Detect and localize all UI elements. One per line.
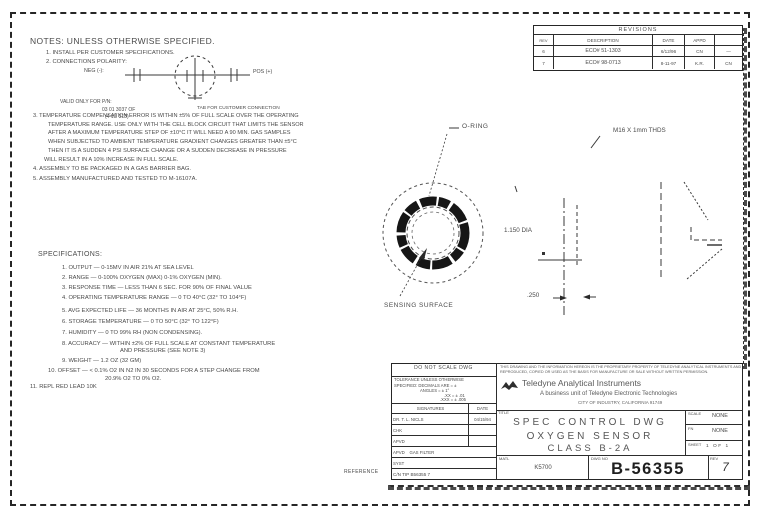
spec-4: 4. OPERATING TEMPERATURE RANGE — 0 TO 40…: [62, 295, 246, 301]
reference-label: REFERENCE: [344, 470, 378, 476]
rev-row-cell: 6: [534, 45, 553, 56]
revisions-table: REVISIONS REV DESCRIPTION DATE APPD 6 EC…: [533, 25, 743, 71]
note-2: 2. CONNECTIONS POLARITY:: [46, 59, 127, 65]
scale-label: SCALE: [688, 412, 701, 416]
title-block-line: [588, 455, 589, 480]
sheet-label: SHEET: [688, 443, 701, 447]
approved-date: [468, 436, 496, 446]
fn-value: NONE: [712, 428, 728, 434]
tolerance-line-1: TOLERANCE UNLESS OTHERWISE: [394, 378, 464, 383]
approved-by: APVD: [391, 439, 468, 444]
sensing-surface-label: SENSING SURFACE: [384, 302, 453, 309]
dia-dimension-label: 1.150 DIA: [504, 228, 532, 235]
drawn-by: DR. T. L. NICLS: [391, 417, 468, 422]
rev-col-header: REV: [534, 35, 553, 45]
spec-3: 3. RESPONSE TIME — LESS THAN 6 SEC. FOR …: [62, 285, 252, 291]
spec-2: 2. RANGE — 0-100% OXYGEN (MAX) 0-1% OXYG…: [62, 275, 222, 281]
polarity-tab-note: TAB FOR CUSTOMER CONNECTION: [197, 106, 280, 111]
polarity-pos-label: POS (+): [253, 70, 272, 76]
rev-row-cell: —: [714, 45, 742, 56]
drawing-title-line2: OXYGEN SENSOR: [500, 431, 680, 442]
checked-by: CHK: [391, 428, 468, 433]
drawing-number: B-56355: [590, 460, 706, 478]
note-3-line6: WILL RESULT IN A 10% INCREASE IN FULL SC…: [44, 157, 178, 163]
spec-11: 11. REPL RED LEAD 10K: [30, 384, 97, 390]
appd-col-header: APPD: [684, 35, 714, 45]
company-subtitle: A business unit of Teledyne Electronic T…: [540, 391, 677, 398]
spec-1: 1. OUTPUT — 0-15MV IN AIR 21% AT SEA LEV…: [62, 265, 194, 271]
matl-label: MATL: [499, 457, 509, 461]
title-block-line: [685, 410, 686, 455]
proprietary-note-line1: THIS DRAWING AND THE INFORMATION HEREON …: [500, 365, 742, 369]
rev-row-cell: ECO# 51-1303: [553, 45, 652, 56]
title-block-line: [685, 424, 743, 425]
syst-row: SYST: [391, 461, 496, 466]
drawing-title-line3: CLASS B-2A: [500, 444, 680, 454]
oring-label: O-RING: [462, 123, 488, 130]
change-number-row: C/N TIP B56355 7: [391, 472, 496, 477]
rev-row-cell: 6/12/96: [652, 45, 684, 56]
spec-10b: 20.9% O2 TO 0% O2.: [105, 376, 161, 382]
specs-heading: SPECIFICATIONS:: [38, 251, 102, 259]
rev-row-cell: CN: [684, 45, 714, 56]
drawing-sheet: NOTES: UNLESS OTHERWISE SPECIFIED. 1. IN…: [0, 0, 764, 518]
notes-heading: NOTES: UNLESS OTHERWISE SPECIFIED.: [30, 37, 215, 46]
thread-callout-label: M16 X 1mm THDS: [613, 128, 666, 135]
date-col-header: DATE: [652, 35, 684, 45]
inner-bottom-border: [388, 485, 750, 490]
do-not-scale-note: DO NOT SCALE DWG: [391, 366, 496, 372]
note-4: 4. ASSEMBLY TO BE PACKAGED IN A GAS BARR…: [33, 166, 191, 172]
rev-row-cell: ECO# 98-0713: [553, 56, 652, 69]
title-block-line: [496, 410, 743, 411]
spec-8a: 8. ACCURACY — WITHIN ±2% OF FULL SCALE A…: [62, 341, 275, 347]
tolerance-xxx: .XXX = ± .005: [440, 398, 466, 403]
spec-6: 6. STORAGE TEMPERATURE — 0 TO 50°C (32° …: [62, 319, 219, 325]
title-block-line: [496, 455, 743, 456]
proprietary-note-line2: REPRODUCED, COPIED OR USED AS THE BASIS …: [500, 370, 742, 374]
signatures-table: SIGNATURES DATE DR. T. L. NICLS 04/15/94…: [391, 403, 496, 480]
valid-line-1: VALID ONLY FOR P/N:: [60, 100, 112, 106]
drawn-date: 04/15/94: [468, 414, 496, 424]
spec-8b: AND PRESSURE (SEE NOTE 3): [120, 348, 205, 354]
desc-col-header: DESCRIPTION: [553, 35, 652, 45]
sheet-value: 1 OF 1: [706, 444, 730, 449]
approved-2-row: APVD GAS FILTER: [391, 450, 496, 455]
polarity-neg-label: NEG (-):: [84, 69, 104, 75]
rev-value: 7: [708, 461, 743, 474]
company-name: Teledyne Analytical Instruments: [522, 379, 641, 388]
rev-row-cell: K.R.: [684, 56, 714, 69]
checked-date: [468, 425, 496, 435]
drawing-title-line1: SPEC CONTROL DWG: [500, 417, 680, 428]
title-block-divider: [496, 363, 497, 480]
signatures-header: SIGNATURES: [391, 406, 468, 411]
note-5: 5. ASSEMBLY MANUFACTURED AND TESTED TO M…: [33, 176, 197, 182]
thickness-dimension-label: .250: [527, 293, 539, 300]
company-address: CITY OF INDUSTRY, CALIFORNIA 91749: [578, 401, 662, 406]
note-1: 1. INSTALL PER CUSTOMER SPECIFICATIONS.: [46, 50, 175, 56]
spec-9: 9. WEIGHT — 1.2 OZ (32 GM): [62, 358, 141, 364]
matl-value: K5700: [498, 465, 588, 472]
note-3-line4: WHEN SUBJECTED TO AMBIENT TEMPERATURE GR…: [48, 139, 297, 145]
teledyne-logo-icon: [500, 379, 520, 397]
note-3-line1: 3. TEMPERATURE COMPENSATION ERROR IS WIT…: [33, 113, 299, 119]
scale-value: NONE: [712, 413, 728, 419]
title-block-line: [685, 440, 743, 441]
inner-right-border: [743, 28, 747, 369]
spec-5: 5. AVG EXPECTED LIFE — 36 MONTHS IN AIR …: [62, 308, 238, 314]
rev-row-cell: 8-11-97: [652, 56, 684, 69]
rev-row-cell: 7: [534, 56, 553, 69]
revisions-title: REVISIONS: [534, 26, 742, 35]
spec-7: 7. HUMIDITY — 0 TO 99% RH (NON CONDENSIN…: [62, 330, 202, 336]
chk-col-header: [714, 35, 742, 45]
date-header: DATE: [468, 403, 496, 413]
note-3-line3: AFTER A MAXIMUM TEMPERATURE STEP OF ±10°…: [48, 130, 290, 136]
note-3-line5: THEN IT IS A SUDDEN 4 PSI SURFACE CHANGE…: [48, 148, 287, 154]
rev-row-cell: CN: [714, 56, 742, 69]
spec-10a: 10. OFFSET — < 0.1% O2 IN N2 IN 30 SECON…: [48, 368, 260, 374]
note-3-line2: TEMPERATURE RANGE. USE ONLY WITH THE CEL…: [48, 122, 304, 128]
fn-label: FN: [688, 427, 693, 431]
title-label: TITLE: [498, 411, 509, 415]
